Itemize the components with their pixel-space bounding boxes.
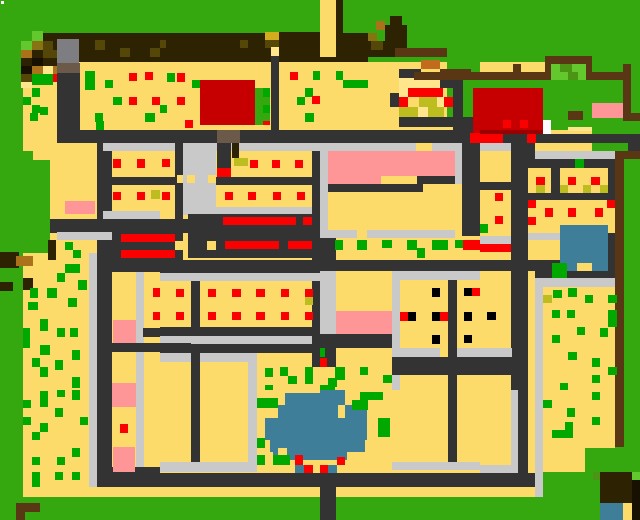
town-map-canvas[interactable] [0,0,640,520]
map-viewport [0,0,640,520]
